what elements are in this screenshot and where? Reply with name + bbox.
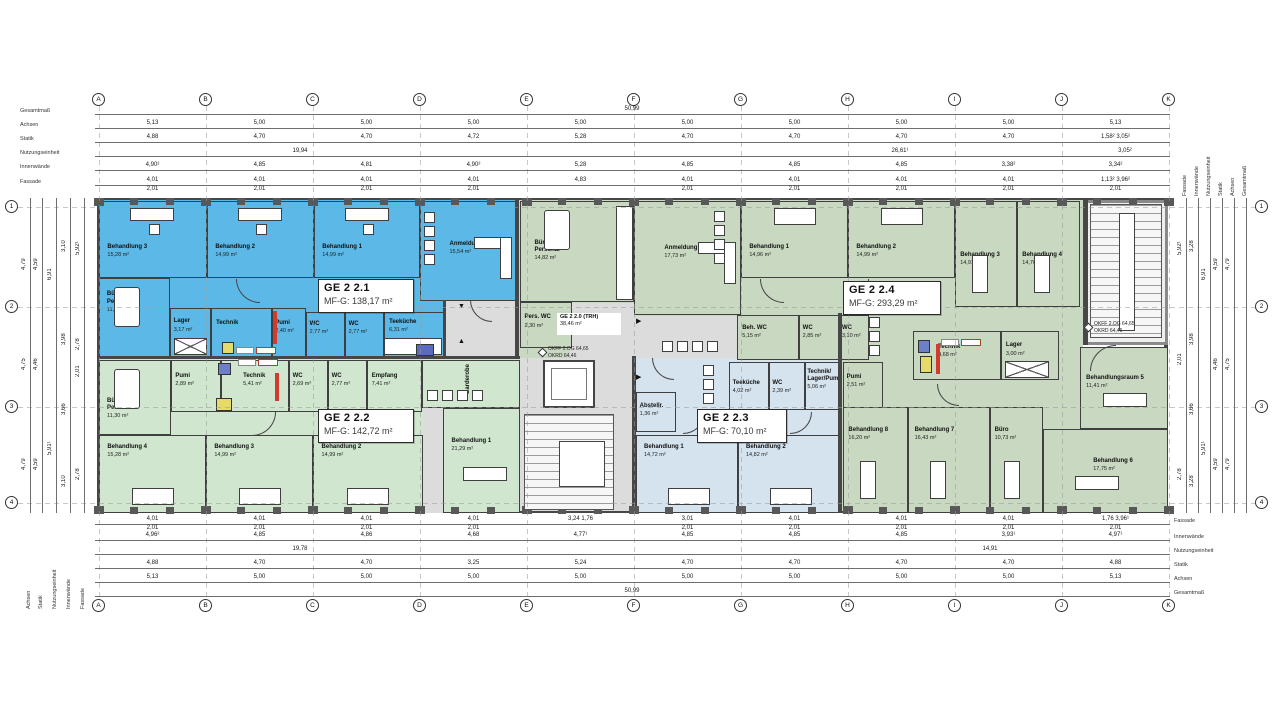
facade-pillar — [1022, 198, 1030, 205]
wall — [443, 300, 446, 358]
facade-pillar — [380, 198, 388, 205]
dim-value: 4,70 — [789, 134, 801, 140]
dim-value: 5,13 — [147, 574, 159, 580]
unit-label-ge-2-2-2: GE 2 2.2MF-G: 142,72 m² — [318, 409, 414, 443]
room-name: Behandlung 7 — [915, 427, 955, 434]
axis-row-left: 1 — [5, 200, 18, 213]
waiting-chair — [714, 253, 725, 264]
dim-line — [95, 582, 1170, 583]
room-name: Behandlungsraum 5 — [1086, 375, 1144, 382]
dim-value: 3,28 — [1189, 459, 1199, 487]
facade-pillar — [451, 198, 459, 205]
axis-col-top: H — [841, 93, 854, 106]
room-label: Behandlung 617,75 m² — [1093, 458, 1133, 472]
desk-icon — [860, 461, 876, 499]
waiting-chair — [869, 331, 880, 342]
dim-value: 4,75 — [1225, 342, 1235, 370]
bed-icon — [881, 208, 923, 225]
facade-pillar — [915, 507, 923, 514]
dim-line-vertical — [56, 198, 57, 513]
dim-value: 5,00 — [254, 574, 266, 580]
room-area: 2,77 m² — [349, 329, 368, 335]
room-area: 14,82 m² — [534, 255, 559, 261]
axis-col-bottom: H — [841, 599, 854, 612]
room-label: WC2,39 m² — [772, 380, 791, 394]
dim-value: 4,59 — [1213, 242, 1223, 270]
dim-value: 3,24 1,76 — [568, 516, 593, 522]
dim-value: 4,88 — [1110, 560, 1122, 566]
room-label: Büro10,73 m² — [995, 427, 1017, 441]
dim-value: 4,85 — [896, 532, 908, 538]
dim-value: 3,34² — [1109, 162, 1123, 168]
facade-pillar — [130, 507, 138, 514]
dim-value: 1,76 3,96¹ — [1102, 516, 1129, 522]
dim-value: 4,88 — [147, 560, 159, 566]
unit-id: GE 2 2.4 — [849, 284, 935, 296]
equipment-tag — [256, 347, 276, 354]
dim-value: 4,70 — [1003, 560, 1015, 566]
room-area: 14,82 m² — [746, 452, 786, 458]
waiting-chair — [692, 341, 703, 352]
table-icon — [544, 210, 570, 250]
unit-area: MF-G: 70,10 m² — [703, 426, 781, 436]
waiting-chair — [662, 341, 673, 352]
facade-pillar — [273, 198, 281, 205]
dim-value: 3,98 — [61, 317, 71, 345]
equipment-tag — [238, 359, 256, 366]
room-behandlung-2-1: Behandlung 214,99 m² — [207, 201, 314, 278]
room-name: WC — [332, 373, 351, 380]
room-name: Pumi — [847, 374, 866, 381]
axis-line-vertical — [634, 106, 635, 608]
facade-pillar — [1129, 507, 1137, 514]
equipment-box — [218, 363, 231, 375]
dim-value: 4,01 — [254, 177, 266, 183]
wall — [515, 198, 519, 358]
waiting-chair — [707, 341, 718, 352]
facade-pillar — [1093, 507, 1101, 514]
axis-line-vertical — [955, 106, 956, 608]
facade-pillar — [237, 507, 245, 514]
room-label: Behandlung 114,96 m² — [749, 244, 789, 258]
dim-value: 6,91 — [1201, 252, 1211, 280]
axis-line-horizontal — [18, 307, 1258, 308]
dim-value: 4,59 — [33, 442, 43, 470]
room-area: 14,96 m² — [749, 252, 789, 258]
room-label: Behandlung 114,99 m² — [322, 244, 362, 258]
shaft-xbox — [174, 338, 207, 355]
room-label: Pers. WC2,30 m² — [525, 314, 551, 328]
axis-row-right: 2 — [1255, 300, 1268, 313]
dim-value: 2,01 — [1177, 337, 1187, 365]
room-label: Technik/ Lager/Pumi5,06 m² — [807, 369, 840, 390]
dim-value: 5,13 — [147, 120, 159, 126]
dim-value: 4,01 — [789, 516, 801, 522]
room-area: 2,39 m² — [772, 388, 791, 394]
dim-category-label: Innenwände — [1194, 104, 1204, 196]
axis-col-top: F — [627, 93, 640, 106]
room-label: Behandlung 716,43 m² — [915, 427, 955, 441]
room-name: Teeküche — [733, 380, 760, 387]
dim-value: 4,85 — [254, 162, 266, 168]
facade-pillar — [986, 507, 994, 514]
elevator-cabin — [551, 368, 587, 400]
room-area: 2,77 m² — [332, 381, 351, 387]
trh-id: GE 2 2.0 (TRH) — [560, 314, 618, 321]
desk-icon — [1103, 393, 1147, 407]
room-name: Behandlung 2 — [746, 444, 786, 451]
room-name: WC — [803, 325, 822, 332]
dim-value: 4,85 — [896, 162, 908, 168]
dim-value: 4,01 — [468, 177, 480, 183]
facade-pillar — [130, 198, 138, 205]
dim-value: 4,85 — [682, 162, 694, 168]
room-lager-5: Lager3,17 m² — [170, 308, 211, 357]
dim-value: 2,01 — [1003, 186, 1015, 192]
axis-row-right: 3 — [1255, 400, 1268, 413]
facade-pillar — [166, 198, 174, 205]
desk-icon — [724, 242, 736, 284]
waiting-chair — [703, 379, 714, 390]
facade-pillar — [344, 507, 352, 514]
room-behandlung-2-45: Behandlung 214,82 m² — [738, 435, 840, 513]
dim-value: 4,72 — [468, 134, 480, 140]
room-area: 15,28 m² — [107, 452, 147, 458]
facade-pillar — [772, 507, 780, 514]
room-label: Pumi2,51 m² — [847, 374, 866, 388]
wall — [99, 356, 520, 359]
dim-value: 1,13² 3,96² — [1101, 177, 1130, 183]
dim-value: 5,00 — [468, 574, 480, 580]
counter — [616, 206, 633, 300]
facade-pillar — [273, 507, 281, 514]
dim-value: 26,61¹ — [891, 148, 908, 154]
room-label: WC2,85 m² — [803, 325, 822, 339]
dim-category-label: Achsen — [1174, 576, 1192, 582]
facade-pillar — [344, 198, 352, 205]
unit-id: GE 2 2.3 — [703, 412, 781, 424]
dim-value: 4,59 — [33, 242, 43, 270]
unit-area: MF-G: 142,72 m² — [324, 426, 408, 436]
room-label: Behandlung 214,99 m² — [322, 444, 362, 458]
room-technik-lager-pumi-42: Technik/ Lager/Pumi5,06 m² — [805, 362, 840, 410]
unit-label-ge-2-2-1: GE 2 2.1MF-G: 138,17 m² — [318, 279, 414, 313]
dim-line — [95, 142, 1170, 143]
facade-pillar — [879, 507, 887, 514]
room-behandlung-7-25: Behandlung 716,43 m² — [908, 407, 990, 513]
dim-value: 4,75 — [21, 342, 31, 370]
room-name: WC — [293, 373, 312, 380]
axis-col-bottom: K — [1162, 599, 1175, 612]
room-behandlung-4-17: Behandlung 414,76 m² — [1017, 201, 1080, 307]
axis-line-vertical — [1062, 106, 1063, 608]
facade-pillar — [701, 198, 709, 205]
waiting-chair — [457, 390, 468, 401]
dim-value: 4,46 — [1213, 342, 1223, 370]
dim-value: 5,91¹ — [1201, 427, 1211, 455]
axis-line-vertical — [206, 106, 207, 608]
region-gray — [423, 408, 443, 513]
unit-area: MF-G: 293,29 m² — [849, 298, 935, 308]
dim-value: 2,01 — [361, 186, 373, 192]
unit-label-ge-2-2-3: GE 2 2.3MF-G: 70,10 m² — [697, 409, 787, 443]
room-name: Behandlung 4 — [107, 444, 147, 451]
equipment-tag — [236, 347, 254, 354]
chair-icon — [256, 224, 267, 235]
dim-value: 2,01 — [147, 525, 159, 531]
waiting-chair — [703, 365, 714, 376]
facade-pillar — [451, 507, 459, 514]
dim-value: 4,70 — [682, 560, 694, 566]
room-area: 3,00 m² — [1006, 351, 1025, 357]
room-name: Behandlung 3 — [107, 244, 147, 251]
waiting-chair — [424, 240, 435, 251]
dim-value: 3,38² — [1002, 162, 1016, 168]
shaft-xbox — [1005, 361, 1049, 378]
dim-line — [95, 156, 1170, 157]
dim-value: 2,01 — [75, 349, 85, 377]
room-name: WC — [772, 380, 791, 387]
dim-category-label: Achsen — [1230, 104, 1240, 196]
fire-wall-marker — [936, 344, 940, 374]
waiting-chair — [427, 390, 438, 401]
axis-col-bottom: B — [199, 599, 212, 612]
okff-line: OKFF 2.OG 64,65 — [1094, 321, 1164, 328]
axis-col-top: E — [520, 93, 533, 106]
direction-arrow: ▶ — [636, 318, 641, 325]
dim-category-label: Fassade — [20, 179, 41, 185]
room-behandlung-8-24: Behandlung 816,20 m² — [843, 407, 908, 513]
room-wc-41: WC2,39 m² — [769, 362, 805, 410]
equipment-box — [920, 356, 932, 373]
room-name: Pumi — [275, 320, 294, 327]
dim-value: 3,25 — [468, 560, 480, 566]
waiting-chair — [714, 211, 725, 222]
unit-id: GE 2 2.2 — [324, 412, 408, 424]
dim-value: 4,70 — [361, 560, 373, 566]
dim-value: 5,00 — [468, 120, 480, 126]
room-area: 21,29 m² — [452, 446, 492, 452]
room-label: Technik5,41 m² — [243, 373, 265, 387]
dim-value: 4,79 — [1225, 442, 1235, 470]
axis-line-vertical — [99, 106, 100, 608]
dim-value: 4,70 — [254, 560, 266, 566]
axis-col-bottom: D — [413, 599, 426, 612]
dim-value: 3,05² — [1118, 148, 1132, 154]
room-behandlung-1-14: Behandlung 114,96 m² — [741, 201, 848, 278]
axis-col-top: D — [413, 93, 426, 106]
dim-value: 4,97¹ — [1109, 532, 1123, 538]
room-area: 2,30 m² — [525, 323, 551, 329]
trh-area: 38,46 m² — [560, 321, 618, 328]
room-label: Behandlung 214,99 m² — [215, 244, 255, 258]
waiting-chair — [869, 317, 880, 328]
dim-category-label: Innenwände — [1174, 534, 1204, 540]
dim-value: 2,01 — [468, 186, 480, 192]
room-behandlung-1-39: Behandlung 121,29 m² — [443, 408, 520, 513]
desk-icon — [238, 208, 282, 221]
desk-icon — [1075, 476, 1119, 490]
room-abstellr-43: Abstellr.1,36 m² — [636, 392, 676, 432]
dim-category-label: Statik — [20, 136, 34, 142]
dim-value: 5,00 — [254, 120, 266, 126]
facade-pillar — [701, 507, 709, 514]
facade-pillar — [879, 198, 887, 205]
room-name: Behandlung 3 — [214, 444, 254, 451]
dim-value: 4,01 — [361, 516, 373, 522]
dim-value: 4,01 — [147, 516, 159, 522]
room-name: Behandlung 1 — [322, 244, 362, 251]
room-label: Behandlung 415,28 m² — [107, 444, 147, 458]
room-label: Behandlung 114,72 m² — [644, 444, 684, 458]
axis-col-top: C — [306, 93, 319, 106]
dim-category-label: Nutzungseinheit — [1174, 548, 1213, 554]
dim-value: 5,00 — [789, 120, 801, 126]
room-name: Behandlung 2 — [215, 244, 255, 251]
room-name: Behandlung 1 — [452, 438, 492, 445]
room-label: WC3,10 m² — [842, 325, 861, 339]
dim-category-label: Nutzungseinheit — [20, 150, 59, 156]
axis-line-vertical — [848, 106, 849, 608]
fire-wall-marker — [275, 373, 279, 401]
dim-line — [95, 540, 1170, 541]
fire-wall-marker — [273, 311, 277, 344]
bed-icon — [774, 208, 816, 225]
room-behandlung-4-36: Behandlung 415,28 m² — [99, 435, 206, 513]
dim-value: 4,59 — [1213, 442, 1223, 470]
dim-value: 2,01 — [789, 186, 801, 192]
dim-value: 1,58² 3,05² — [1101, 134, 1130, 140]
stair-rail — [1119, 213, 1135, 331]
axis-line-horizontal — [18, 207, 1258, 208]
dim-value: 4,85 — [789, 162, 801, 168]
dim-value: 5,00 — [1003, 120, 1015, 126]
table-icon — [114, 369, 140, 409]
axis-line-vertical — [420, 106, 421, 608]
dim-value: 5,28 — [575, 134, 587, 140]
room-area: 6,31 m² — [389, 327, 416, 333]
facade-pillar — [487, 198, 495, 205]
axis-col-top: A — [92, 93, 105, 106]
room-area: 15,54 m² — [450, 249, 483, 255]
room-area: 10,73 m² — [995, 435, 1017, 441]
dim-value: 3,10 — [61, 459, 71, 487]
dim-value: 2,01 — [789, 525, 801, 531]
dim-value: 2,01 — [254, 525, 266, 531]
dim-value: 4,01 — [789, 177, 801, 183]
axis-line-horizontal — [18, 407, 1258, 408]
dim-value: 2,01 — [1003, 525, 1015, 531]
axis-row-right: 1 — [1255, 200, 1268, 213]
room-behandlung-1-44: Behandlung 114,72 m² — [636, 435, 738, 513]
room-label: Behandlung 315,28 m² — [107, 244, 147, 258]
axis-line-vertical — [313, 106, 314, 608]
dim-value: 5,92¹ — [75, 227, 85, 255]
dim-value: 3,66 — [1189, 387, 1199, 415]
waiting-chair — [714, 225, 725, 236]
elevator — [543, 360, 595, 408]
dim-value: 4,79 — [1225, 242, 1235, 270]
dim-value: 4,01 — [147, 177, 159, 183]
room-label: WC2,77 m² — [332, 373, 351, 387]
dim-value: 5,00 — [1003, 574, 1015, 580]
dim-value: 4,01 — [468, 516, 480, 522]
facade-pillar — [808, 507, 816, 514]
room-area: 14,99 m² — [214, 452, 254, 458]
waiting-chair — [472, 390, 483, 401]
room-wc-32: WC2,69 m² — [289, 360, 328, 412]
dim-value: 3,10 — [61, 224, 71, 252]
room-behandlung-2-38: Behandlung 214,99 m² — [313, 435, 423, 513]
dim-value: 3,98 — [1189, 317, 1199, 345]
okff-line: OKFF 2.OG 64,65 — [548, 346, 618, 353]
facade-pillar — [487, 507, 495, 514]
dim-value: 4,96² — [146, 532, 160, 538]
room-label: WC2,69 m² — [293, 373, 312, 387]
okrd-line: OKRD 64,46 — [1094, 328, 1164, 335]
room-pumi-30: Pumi2,89 m² — [171, 360, 221, 412]
room-label: Behandlung 816,20 m² — [848, 427, 888, 441]
room-label: Empfang7,41 m² — [372, 373, 398, 387]
room-name: Behandlung 6 — [1093, 458, 1133, 465]
room-area: 14,72 m² — [644, 452, 684, 458]
dim-value: 5,28 — [575, 162, 587, 168]
room-wc-33: WC2,77 m² — [328, 360, 367, 412]
room-area: 16,20 m² — [848, 435, 888, 441]
stair-top-right — [1090, 204, 1162, 338]
dim-line-vertical — [1210, 198, 1211, 513]
dim-line — [95, 170, 1170, 171]
dim-value: 50,99 — [624, 588, 639, 594]
equipment-tag — [941, 339, 959, 346]
dim-value: 5,00 — [575, 574, 587, 580]
room-label: Behandlung 314,99 m² — [214, 444, 254, 458]
facade-pillar — [380, 507, 388, 514]
dim-value: 4,85 — [254, 532, 266, 538]
dim-value: 4,88 — [147, 134, 159, 140]
desk-icon — [930, 461, 946, 499]
room-behandlung-3-0: Behandlung 315,28 m² — [99, 201, 207, 278]
room-lager-22: Lager3,00 m² — [1001, 331, 1059, 380]
stair-main — [524, 414, 614, 510]
level-annotation: OKFF 2.OG 64,65OKRD 64,46 — [1094, 321, 1164, 335]
axis-row-right: 4 — [1255, 496, 1268, 509]
direction-arrow: ▶ — [636, 374, 641, 381]
facade-pillar — [665, 198, 673, 205]
dim-value: 4,01 — [361, 177, 373, 183]
room-label: Beh. WC5,15 m² — [742, 325, 767, 339]
dim-value: 14,91 — [982, 546, 997, 552]
dim-value: 3,93¹ — [1002, 532, 1016, 538]
room-label: Behandlung 214,99 m² — [856, 244, 896, 258]
axis-col-bottom: J — [1055, 599, 1068, 612]
dim-line — [95, 114, 1170, 115]
room-label: Technik — [216, 320, 238, 327]
room-label: Abstellr.1,36 m² — [640, 403, 664, 417]
stair-landing — [559, 441, 605, 487]
room-label: Behandlung 121,29 m² — [452, 438, 492, 452]
room-area: 4,68 m² — [938, 352, 960, 358]
waiting-chair — [424, 212, 435, 223]
room-wc-8: WC2,77 m² — [306, 312, 345, 357]
dim-category-label: Gesamtmaß — [1242, 104, 1252, 196]
axis-col-top: I — [948, 93, 961, 106]
desk-icon — [130, 208, 174, 221]
dim-value: 3,01 — [682, 516, 694, 522]
room-area: 14,99 m² — [322, 252, 362, 258]
room-area: 14,99 m² — [215, 252, 255, 258]
room-area: 11,41 m² — [1086, 383, 1144, 389]
